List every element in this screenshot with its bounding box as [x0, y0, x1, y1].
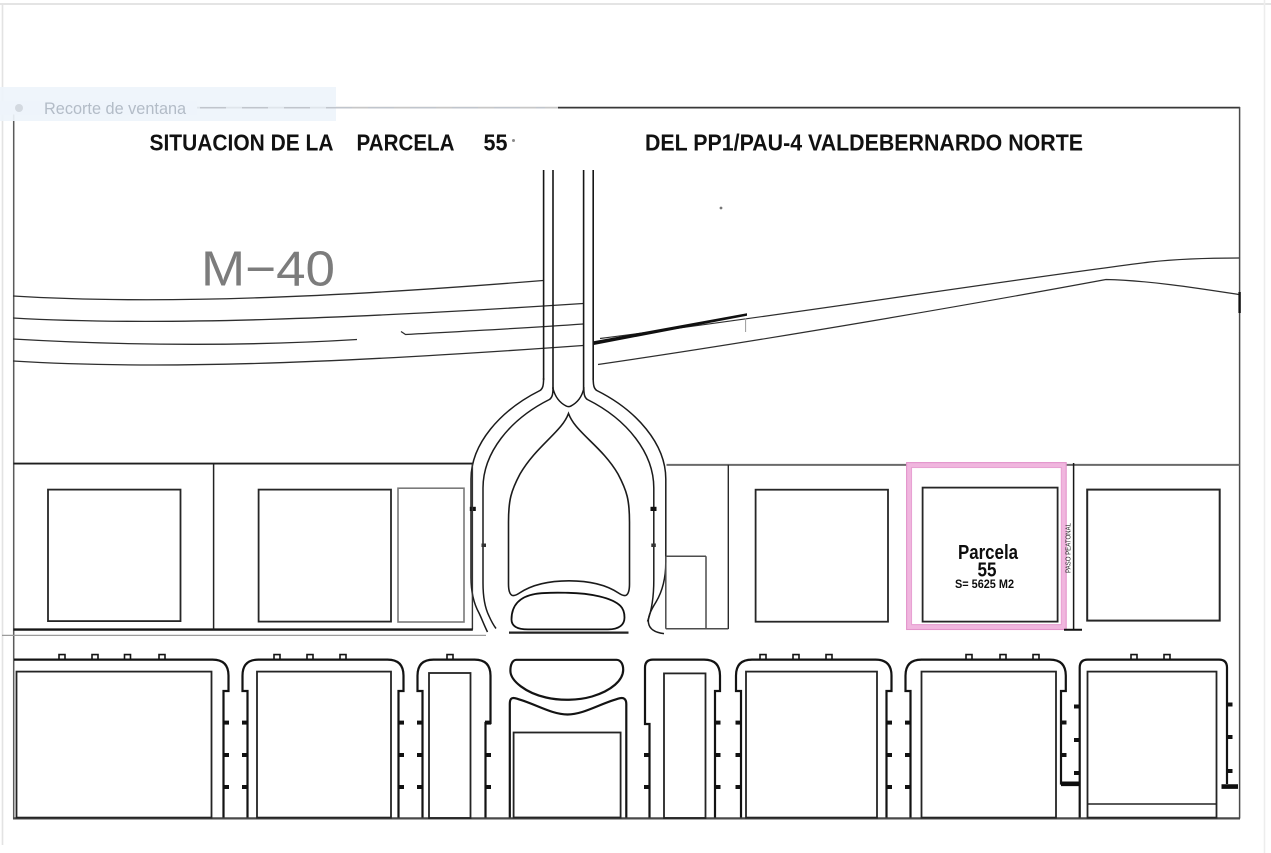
svg-text:DEL PP1/PAU-4 VALDEBERNARDO NO: DEL PP1/PAU-4 VALDEBERNARDO NORTE — [645, 129, 1083, 155]
svg-text:PARCELA: PARCELA — [357, 129, 455, 155]
svg-text:55: 55 — [484, 129, 508, 155]
svg-text:Recorte de ventana: Recorte de ventana — [44, 100, 187, 118]
svg-text:PASO PEATONAL: PASO PEATONAL — [1066, 523, 1073, 573]
svg-text:S= 5625 M2: S= 5625 M2 — [955, 577, 1014, 591]
svg-text:M−40: M−40 — [201, 243, 335, 297]
svg-text:SITUACION DE LA: SITUACION DE LA — [150, 129, 334, 155]
